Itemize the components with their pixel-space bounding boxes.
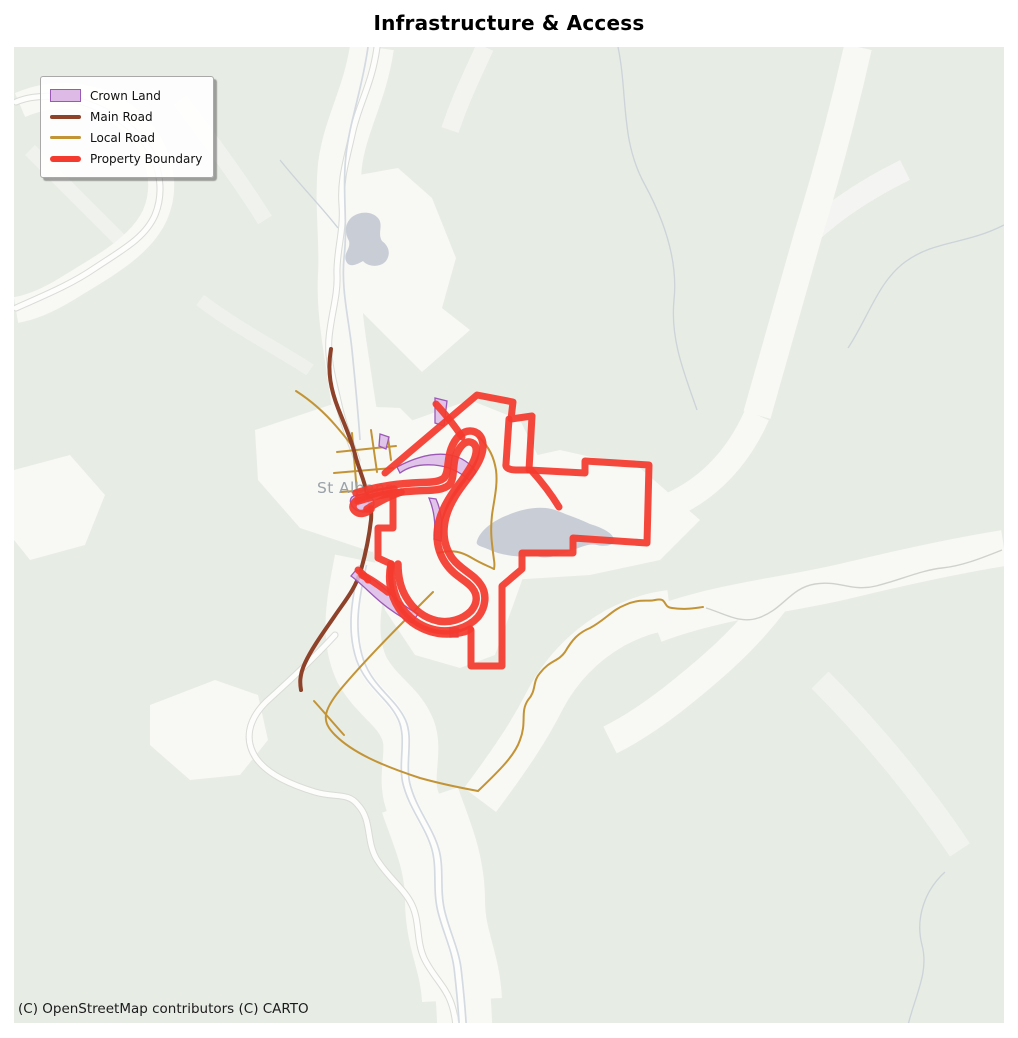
legend-item-main-road: Main Road	[50, 106, 202, 127]
legend-item-property-boundary: Property Boundary	[50, 148, 202, 169]
legend: Crown Land Main Road Local Road Property…	[40, 76, 214, 178]
local-road-swatch	[50, 136, 81, 139]
legend-item-local-road: Local Road	[50, 127, 202, 148]
property-boundary-swatch	[50, 156, 81, 162]
page-title: Infrastructure & Access	[0, 11, 1018, 35]
attribution: (C) OpenStreetMap contributors (C) CARTO	[18, 1001, 309, 1017]
main-road-swatch	[50, 115, 81, 119]
crown-land-swatch	[50, 89, 81, 102]
legend-item-crown-land: Crown Land	[50, 85, 202, 106]
map-figure: St Albans	[0, 0, 1018, 1038]
